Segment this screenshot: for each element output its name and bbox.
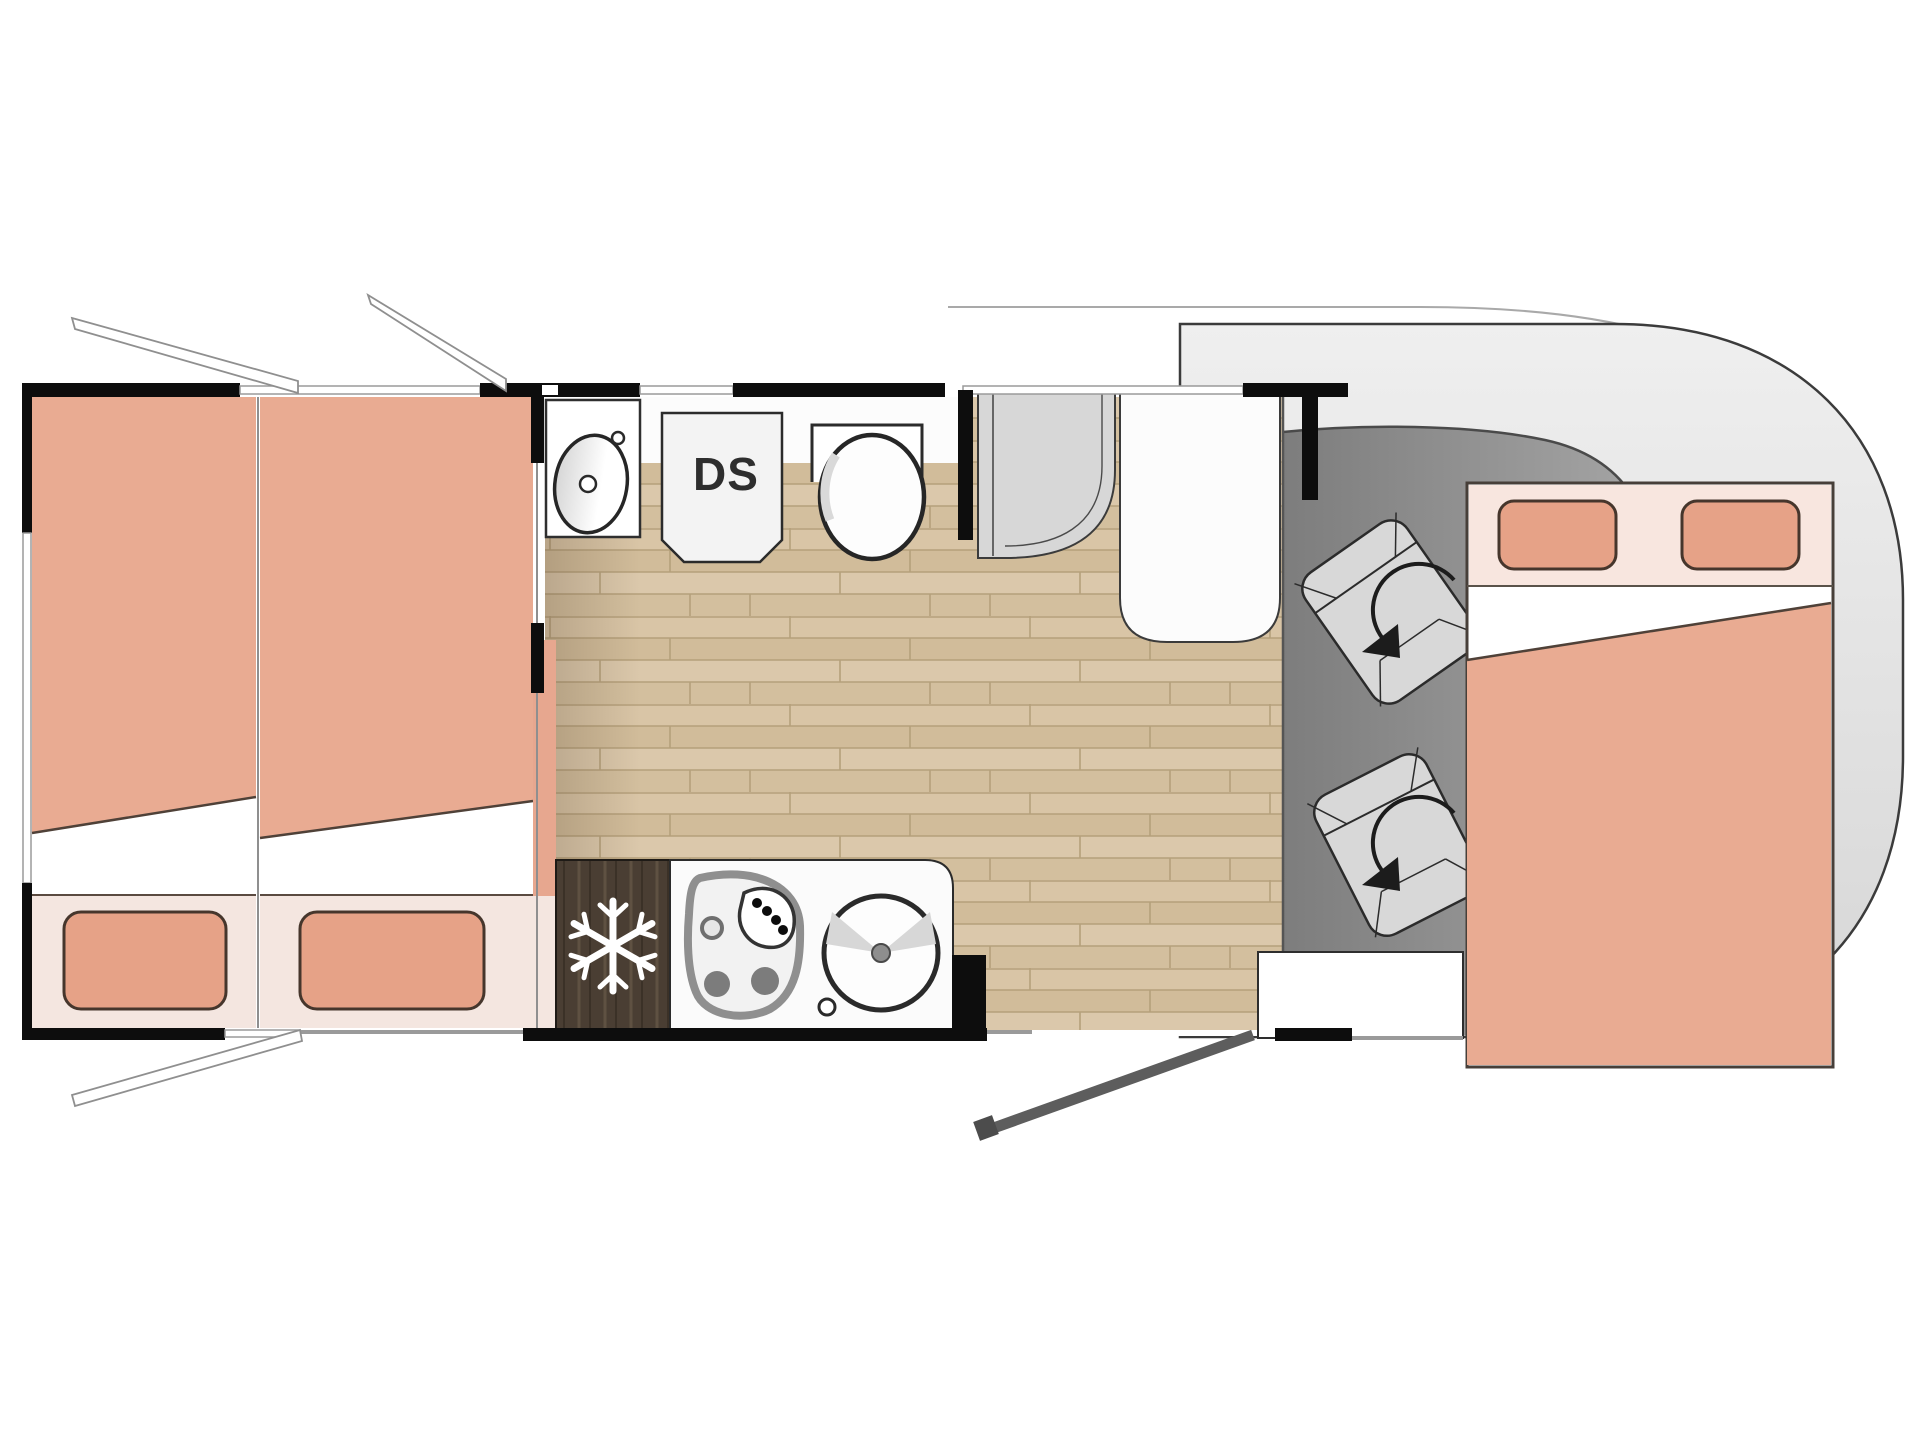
burner-right <box>751 967 779 995</box>
open-window-flap <box>72 318 298 393</box>
ds-label: DS <box>693 448 759 500</box>
wall-left-2 <box>22 883 32 1040</box>
washbasin-faucet <box>612 432 624 444</box>
bed-right-duvet <box>260 397 533 838</box>
wall-bottom-thin <box>300 1030 525 1034</box>
wall-bottom-1 <box>22 1028 225 1040</box>
drop-bed-pillow-right <box>1682 501 1799 569</box>
wall-left-1 <box>22 383 32 533</box>
wall-shower-1 <box>958 390 973 540</box>
wall-top-stub <box>1243 383 1348 397</box>
door-swing <box>988 1035 1253 1130</box>
drop-bed-duvet <box>1467 603 1831 1065</box>
shower-ds-unit: DS <box>662 413 782 562</box>
kitchen <box>556 860 953 1030</box>
open-window-flap <box>368 295 506 391</box>
bed-left-pillow <box>64 912 226 1009</box>
door-threshold <box>987 1030 1032 1034</box>
wall-top-3 <box>733 383 945 397</box>
door-tip <box>973 1115 999 1141</box>
wall-top-1 <box>22 383 240 397</box>
entry-step <box>1258 952 1463 1038</box>
wall-cab-stub <box>1302 397 1318 500</box>
wardrobe-unit <box>1120 392 1280 642</box>
rear-bedroom <box>32 397 533 1028</box>
grill-plate <box>740 888 795 947</box>
sink-drain <box>872 944 890 962</box>
floorplan-canvas: DS <box>0 0 1920 1440</box>
window-top-right <box>963 386 1243 394</box>
bed-left-duvet <box>32 397 256 833</box>
drop-down-bed <box>1467 483 1833 1067</box>
burner-left <box>704 971 730 997</box>
hob <box>688 874 800 1015</box>
wall-galley-end <box>952 955 986 1033</box>
burner-small <box>702 918 722 938</box>
washbasin-drain <box>580 476 596 492</box>
motorhome-floorplan: DS <box>0 0 1920 1440</box>
bed-right-pillow <box>300 912 484 1009</box>
kitchen-base-wall <box>523 1028 987 1041</box>
window-left <box>23 533 31 883</box>
sink-tap <box>819 999 835 1015</box>
bed-left <box>32 397 256 1028</box>
bed-right <box>260 397 533 1028</box>
bathroom: DS <box>546 400 924 562</box>
open-window-flap <box>72 1030 302 1106</box>
window-bathroom <box>640 386 733 394</box>
drop-bed-pillow-left <box>1499 501 1616 569</box>
washbasin-counter <box>546 400 640 538</box>
